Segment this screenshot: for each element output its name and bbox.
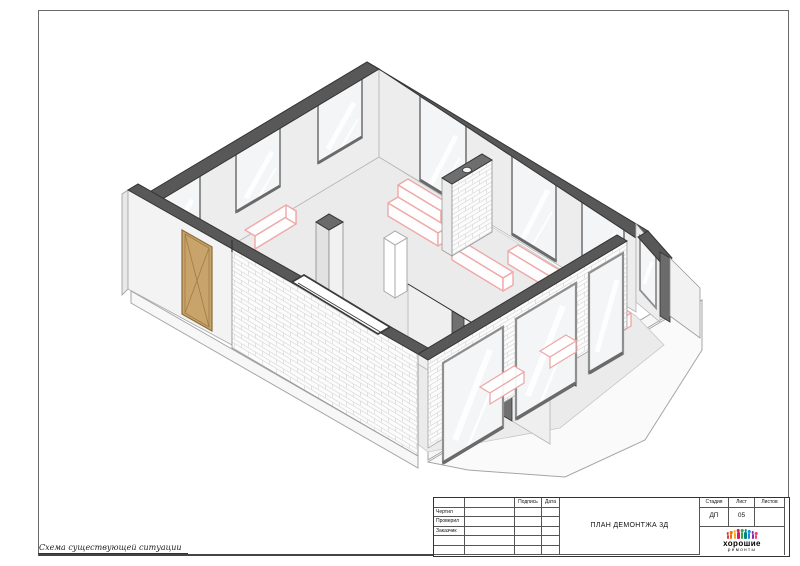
title-block-cell xyxy=(542,527,560,537)
logo-text-line1: хорошие xyxy=(723,540,761,547)
sheets-total xyxy=(755,508,785,527)
title-block-cell xyxy=(515,536,542,546)
row-label-client: Заказчик xyxy=(434,527,465,537)
title-block-cell xyxy=(465,517,515,527)
row-label-checked: Проверил xyxy=(434,517,465,527)
title-block-cell xyxy=(515,527,542,537)
stage-header: Стадия xyxy=(700,498,729,508)
sheet-frame xyxy=(38,10,789,556)
title-block-cell xyxy=(515,546,542,556)
signature-header: Подпись xyxy=(515,498,542,508)
title-block-cell xyxy=(465,527,515,537)
title-block-cell xyxy=(515,508,542,518)
title-block-cell xyxy=(465,536,515,546)
title-block-cell xyxy=(542,508,560,518)
sheet-header: Лист xyxy=(729,498,755,508)
footer-note: Схема существующей ситуации xyxy=(38,543,188,554)
title-block-cell xyxy=(542,517,560,527)
sheets-header: Листов xyxy=(755,498,785,508)
sheet-number: 05 xyxy=(729,508,755,527)
logo-people-icons xyxy=(726,529,758,539)
title-block-cell xyxy=(465,498,515,508)
company-logo: хорошие ремонты xyxy=(700,527,785,556)
title-block-cell xyxy=(542,536,560,546)
title-block-cell xyxy=(542,546,560,556)
stage-value: ДП xyxy=(700,508,729,527)
date-header: Дата xyxy=(542,498,560,508)
row-label-drew: Чертил xyxy=(434,508,465,518)
title-block-cell xyxy=(465,546,515,556)
title-block: Подпись Дата ПЛАН ДЕМОНТЖА 3Д Стадия Лис… xyxy=(433,497,790,557)
title-block-cell xyxy=(515,517,542,527)
title-block-cell xyxy=(434,498,465,508)
drawing-title: ПЛАН ДЕМОНТЖА 3Д xyxy=(560,498,700,555)
title-block-cell xyxy=(465,508,515,518)
title-block-cell xyxy=(434,546,465,556)
title-block-cell xyxy=(434,536,465,546)
logo-text-line2: ремонты xyxy=(728,547,756,552)
